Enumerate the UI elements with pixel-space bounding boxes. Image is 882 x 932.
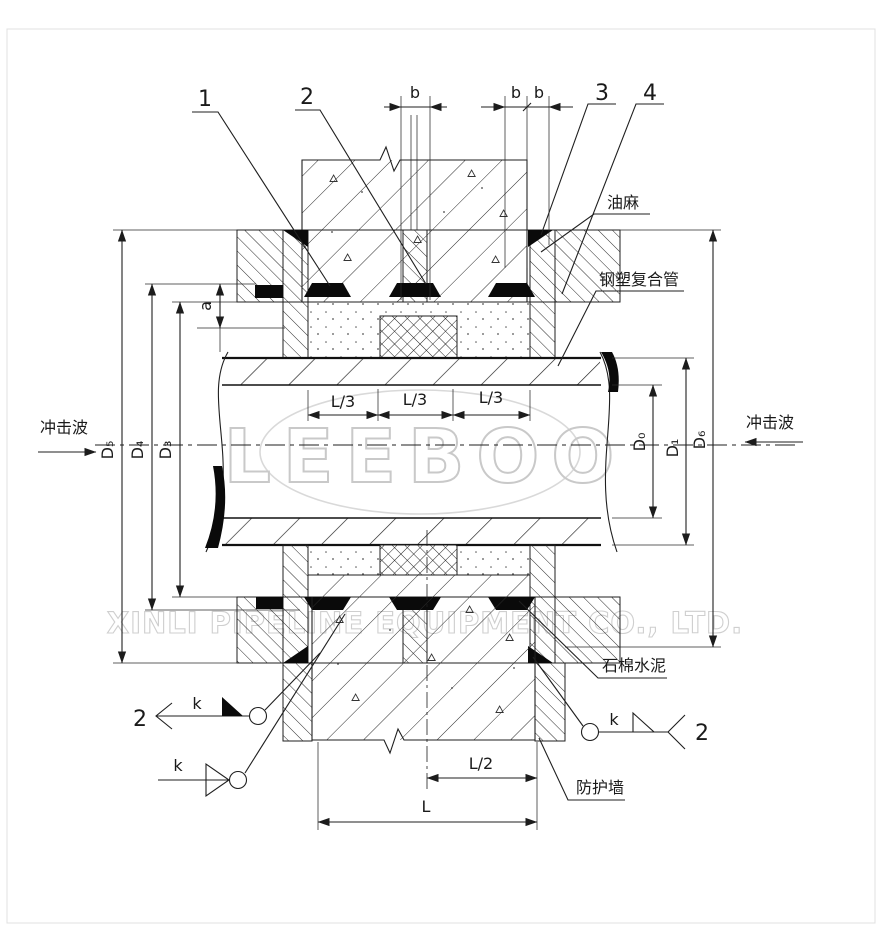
shock-wave-right-label: 冲击波 bbox=[746, 413, 794, 432]
dim-d6: D₆ bbox=[690, 431, 709, 450]
weld-k-1: k bbox=[192, 694, 202, 713]
sleeve-column-left-bottom bbox=[283, 545, 308, 663]
dim-d0: D₀ bbox=[630, 433, 649, 452]
gland-band-bottom bbox=[308, 575, 530, 597]
dim-l3-2: L/3 bbox=[403, 390, 427, 409]
dim-b2: b bbox=[511, 83, 521, 102]
sleeve-column-left-top bbox=[283, 230, 308, 358]
dim-l2: L/2 bbox=[469, 754, 493, 773]
dim-l: L bbox=[422, 797, 431, 816]
label-oakum: 油麻 bbox=[607, 193, 639, 212]
seal-far-left-top bbox=[255, 285, 283, 298]
pipe-wall-bottom bbox=[225, 518, 600, 545]
callout-3: 3 bbox=[595, 81, 609, 106]
dim-d4: D₄ bbox=[128, 441, 147, 460]
seal-ring-2-top bbox=[389, 283, 441, 297]
section-chevron-right bbox=[668, 715, 685, 749]
seal-far-left-bottom bbox=[256, 597, 283, 609]
seal-ring-3-top bbox=[488, 283, 535, 297]
wall-bottom-block bbox=[312, 597, 535, 753]
callout-1: 1 bbox=[198, 87, 212, 112]
drawing-page: LEEBOO XINLI PIPELINE EQUIPMENT CO., LTD… bbox=[0, 0, 882, 932]
oakum-packing-bottom-hatch bbox=[380, 545, 457, 575]
dim-b3: b bbox=[534, 83, 544, 102]
label-pipe: 钢塑复合管 bbox=[599, 270, 679, 289]
section-mark-right: 2 bbox=[695, 721, 709, 746]
weld-flag-1 bbox=[222, 697, 243, 716]
label-cement: 石棉水泥 bbox=[602, 656, 666, 675]
weld-k-3: k bbox=[609, 710, 619, 729]
callout-3-leader bbox=[541, 104, 616, 235]
wall-bottom-fill bbox=[312, 597, 535, 740]
seal-ring-1-top bbox=[304, 283, 351, 297]
weld-flag-3 bbox=[633, 713, 654, 732]
dim-l3-1: L/3 bbox=[331, 392, 355, 411]
weld-circle-2 bbox=[230, 772, 247, 789]
weld-circle-3 bbox=[582, 724, 599, 741]
flange-plate-right-bottom bbox=[555, 597, 620, 663]
weld-circle-1 bbox=[250, 708, 267, 725]
dim-d5: D₅ bbox=[98, 441, 117, 460]
wall-face-right-bottom bbox=[535, 663, 565, 741]
label-wall: 防护墙 bbox=[576, 778, 624, 797]
section-mark-left: 2 bbox=[133, 707, 147, 732]
dim-b1: b bbox=[410, 83, 420, 102]
dim-a: a bbox=[196, 301, 215, 311]
callout-4: 4 bbox=[643, 81, 657, 106]
shock-wave-left-label: 冲击波 bbox=[40, 418, 88, 437]
dim-d1: D₁ bbox=[663, 439, 682, 458]
watermark-logo: LEEBOO bbox=[224, 414, 626, 500]
dim-d3: D₃ bbox=[156, 441, 175, 460]
sleeve-column-right-top bbox=[530, 230, 555, 358]
wall-face-left-bottom bbox=[283, 663, 312, 741]
dim-l3-3: L/3 bbox=[479, 388, 503, 407]
callout-2: 2 bbox=[300, 85, 314, 110]
pipe-break-left-shade bbox=[205, 466, 225, 548]
oakum-packing-top-hatch bbox=[380, 316, 457, 358]
weld-k-2: k bbox=[173, 756, 183, 775]
pipe-wall-top bbox=[225, 358, 600, 385]
engineering-drawing: LEEBOO XINLI PIPELINE EQUIPMENT CO., LTD… bbox=[0, 0, 882, 932]
